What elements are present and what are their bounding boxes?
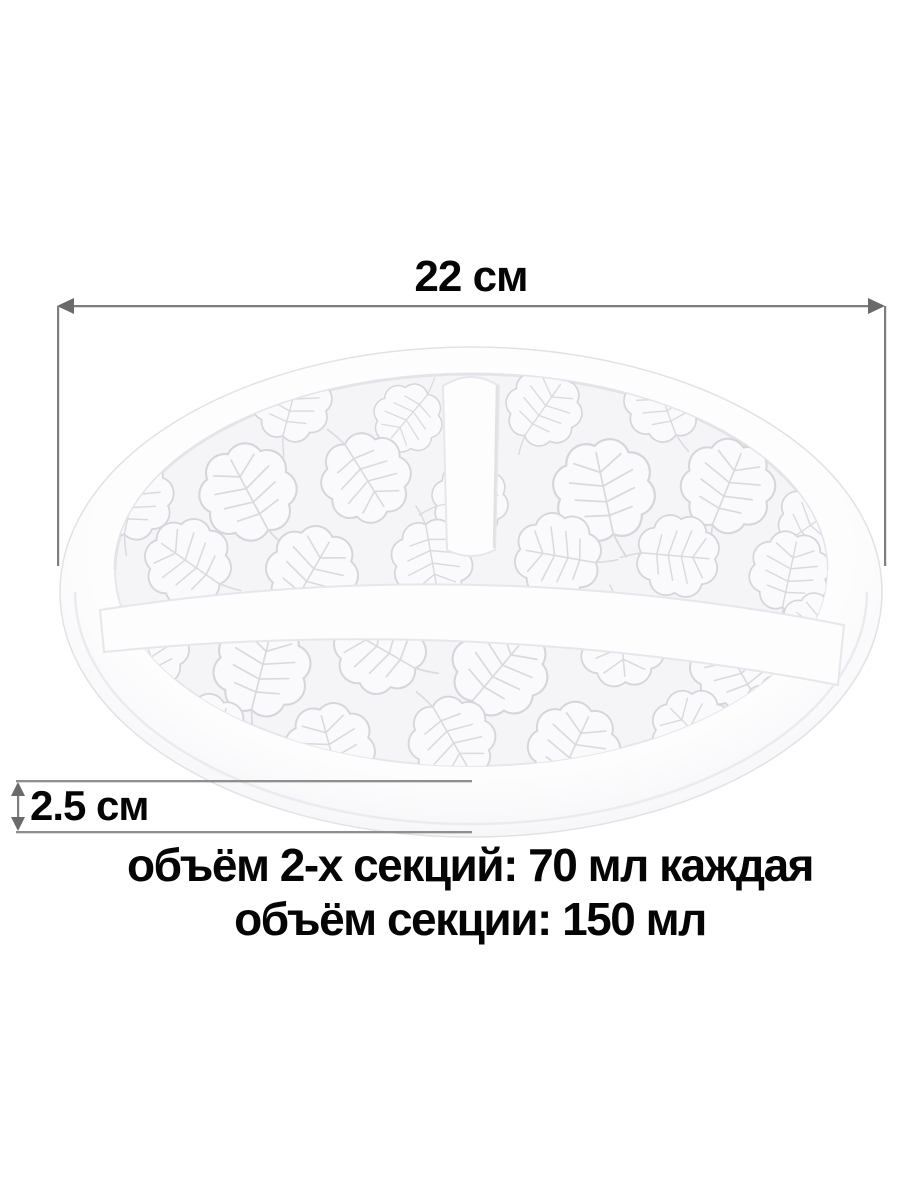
diameter-arrowhead-left-icon [57, 298, 74, 314]
height-dimension-label: 2.5 см [30, 782, 148, 830]
diameter-extension-line-right [884, 306, 886, 566]
diameter-arrowhead-right-icon [868, 298, 885, 314]
volume-info-line2: объём секции: 150 мл [40, 892, 900, 946]
diameter-extension-line-left [57, 306, 59, 566]
diameter-dimension-label: 22 см [58, 254, 884, 300]
height-arrowhead-up-icon [11, 782, 25, 796]
vertical-divider [443, 377, 499, 556]
height-extension-line-bottom [16, 831, 472, 833]
volume-info-line1: объём 2-х секций: 70 мл каждая [40, 838, 900, 892]
plate-illustration [0, 0, 900, 1200]
volume-info-block: объём 2-х секций: 70 мл каждая объём сек… [40, 838, 900, 946]
product-image-canvas: 22 см 2.5 см объём 2-х секций: 70 мл каж… [0, 0, 900, 1200]
height-arrowhead-down-icon [11, 817, 25, 831]
diameter-dimension-line [74, 305, 868, 307]
